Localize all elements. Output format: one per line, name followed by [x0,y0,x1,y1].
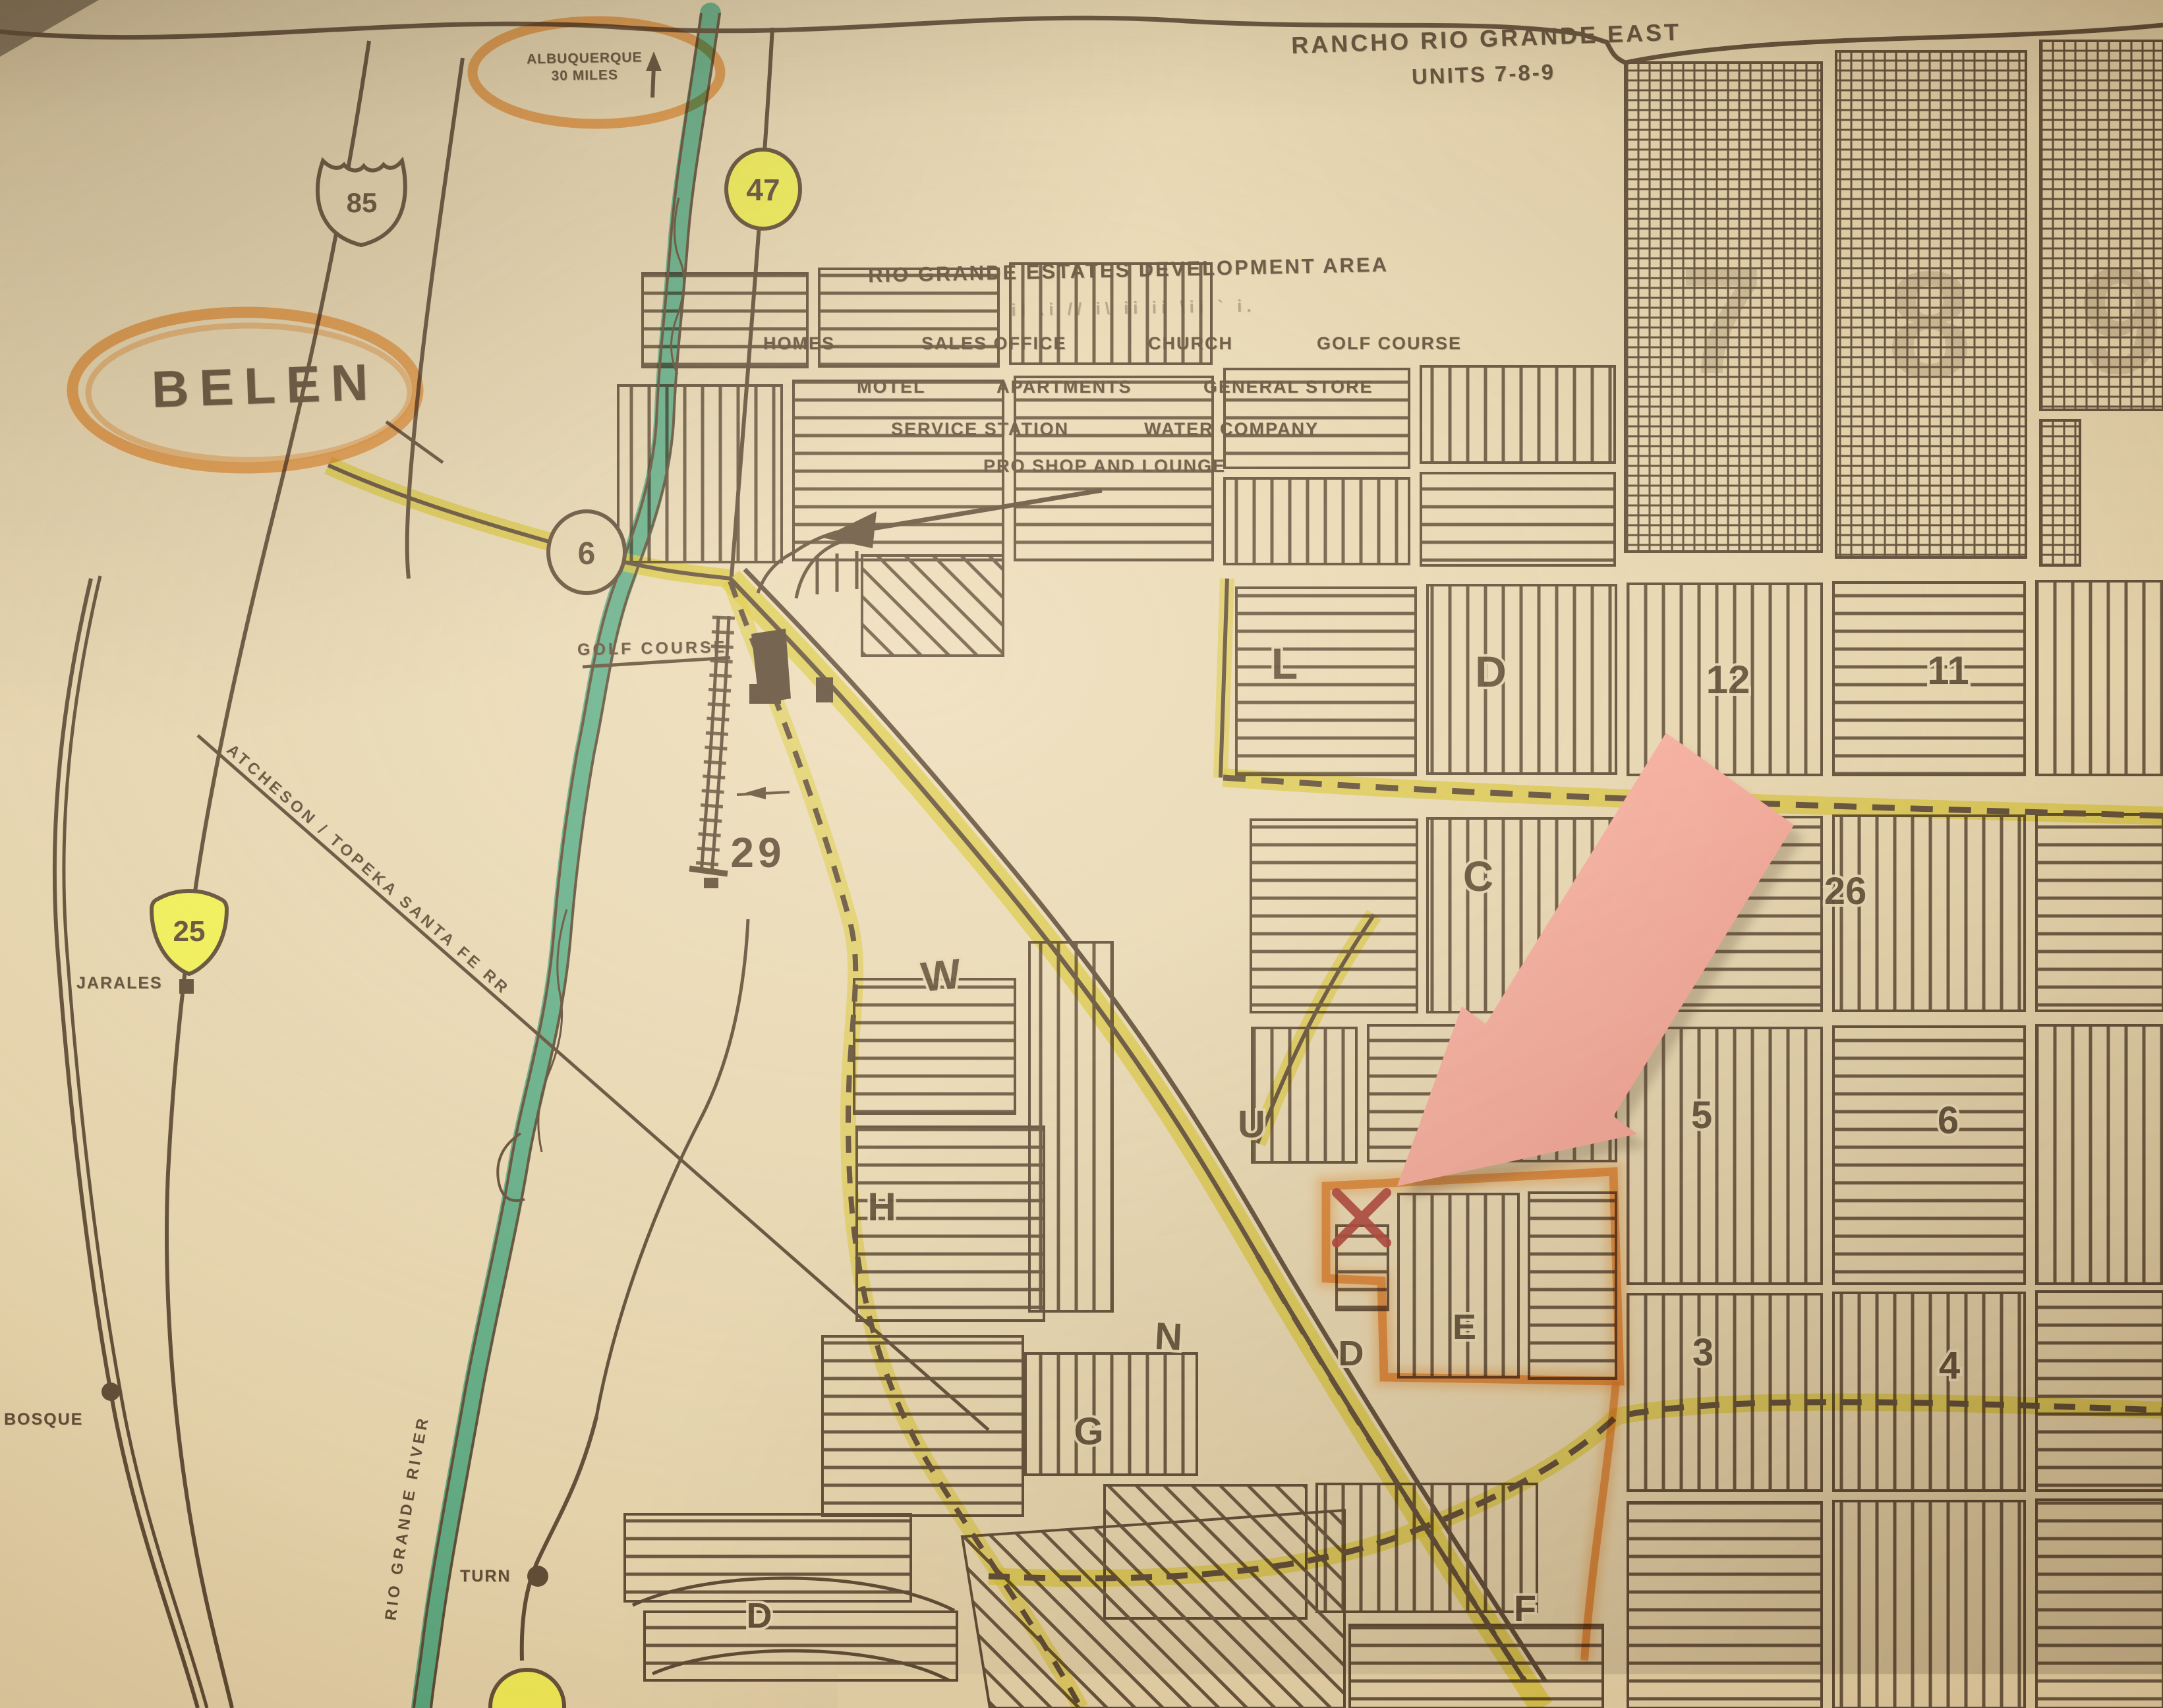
map-unit-label: 6 [1938,1099,1959,1142]
map-unit-label: 11 [1927,648,1969,693]
map-unit-number-faint: 7 [1679,236,1764,405]
amenity-label: WATER COMPANY [1144,419,1319,440]
us85-number: 85 [347,187,378,218]
plat-block [1628,1294,1822,1491]
plat-block [793,381,1003,560]
amenity-label: APARTMENTS [996,377,1132,397]
plat-block [1833,816,2025,1011]
map-unit-label: 3 [1692,1331,1714,1374]
milepost-29: 29 [730,829,785,876]
map-unit-label: G [1074,1410,1103,1453]
amenity-label: HOMES [763,333,835,354]
map-unit-label: C [1463,853,1493,900]
plat-block [2036,814,2163,1011]
map-unit-label: 12 [1706,658,1750,702]
nm6-number: 6 [578,536,596,571]
map-unit-label: 5 [1691,1094,1712,1137]
plat-block [1421,366,1615,463]
map-unit-label: H [867,1185,896,1229]
plat-block-golf [862,555,1003,656]
plat-block [1833,1293,2025,1491]
map-unit-number-faint: 9 [2079,236,2163,405]
amenity-label: PRO SHOP AND LOUNGE [983,456,1226,476]
amenity-label: SERVICE STATION [891,419,1069,440]
map-artwork: 29 85 47 6 25 [0,0,2163,1708]
plat-block [1225,478,1409,564]
map-unit-label: 4 [1939,1344,1960,1387]
plat-block [1399,1194,1518,1377]
plat-block [2036,1292,2163,1491]
map-unit-label: L [1271,639,1298,688]
plat-block [1628,1502,1822,1708]
plat-block [1025,1353,1197,1475]
map-unit-label: N [1153,1315,1183,1359]
plat-block [1236,588,1416,775]
map-unit-label: D [1475,647,1507,696]
i25-number: 25 [173,915,206,948]
plat-block [2036,1025,2163,1284]
map-unit-label: 26 [1824,870,1867,913]
plat-block [1421,473,1615,565]
plat-block [822,1336,1023,1516]
plat-block [1529,1193,1616,1379]
map-unit-label: E [1453,1307,1476,1347]
plat-block [625,1514,911,1601]
amenity-label: CHURCH [1148,333,1233,354]
plat-block [2036,581,2163,775]
plat-block [645,1612,957,1680]
plat-grid-unit9-notch [2040,420,2080,565]
map-unit-label: W [919,950,964,1001]
plat-block [2036,1500,2163,1708]
plat-block [1833,1501,2025,1708]
map-unit-label: D [1339,1334,1364,1373]
amenity-label: GENERAL STORE [1203,377,1373,397]
amenity-label: GOLF COURSE [1317,333,1462,354]
amenity-label: SALES OFFICE [921,333,1067,354]
plat-block [1350,1625,1603,1708]
plat-block [1833,1027,2025,1284]
map-unit-label: D [747,1596,772,1636]
jarales-dot [179,979,194,994]
nm47-number: 47 [746,173,780,207]
amenity-label: MOTEL [857,377,926,397]
plat-block [1428,585,1616,774]
bosque-dot [101,1382,120,1401]
map-unit-label: U [1238,1103,1265,1146]
map-unit-label: F [1514,1587,1536,1629]
map-unit-number-faint: 8 [1888,240,1972,409]
turn-dot [527,1566,548,1587]
map-photo: 29 85 47 6 25 [0,0,2163,1708]
